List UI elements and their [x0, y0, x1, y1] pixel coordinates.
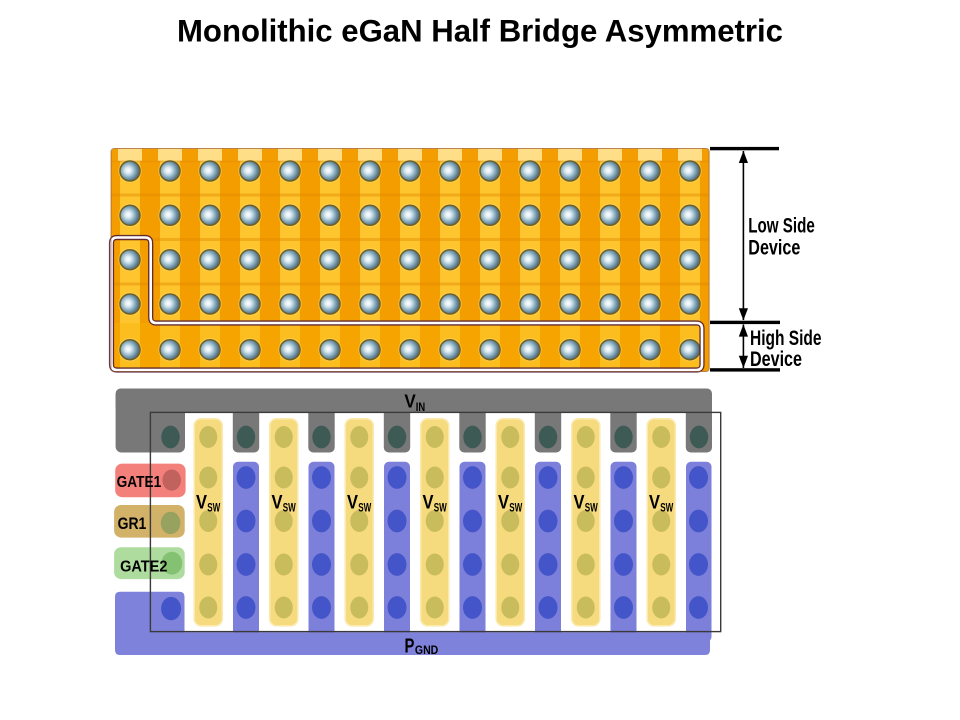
svg-text:SW: SW — [207, 503, 220, 515]
svg-text:GND: GND — [415, 645, 438, 657]
svg-text:SW: SW — [358, 503, 371, 515]
svg-text:Device: Device — [750, 348, 802, 371]
svg-text:V: V — [649, 492, 660, 513]
svg-text:IN: IN — [416, 402, 425, 414]
svg-text:Low Side: Low Side — [748, 215, 815, 238]
svg-text:V: V — [347, 492, 358, 513]
svg-text:GATE2: GATE2 — [120, 559, 167, 576]
svg-text:SW: SW — [660, 503, 673, 515]
svg-text:V: V — [574, 492, 585, 513]
svg-text:SW: SW — [283, 503, 296, 515]
svg-text:V: V — [498, 492, 509, 513]
svg-text:V: V — [272, 492, 283, 513]
svg-text:SW: SW — [509, 503, 522, 515]
svg-text:Device: Device — [748, 237, 800, 260]
svg-text:SW: SW — [434, 503, 447, 515]
svg-text:V: V — [196, 492, 207, 513]
svg-text:GR1: GR1 — [118, 514, 147, 533]
svg-text:P: P — [405, 636, 415, 658]
svg-text:GATE1: GATE1 — [117, 474, 162, 491]
svg-text:V: V — [423, 492, 434, 513]
svg-text:V: V — [404, 391, 416, 412]
svg-text:High Side: High Side — [750, 327, 822, 350]
svg-text:Monolithic eGaN Half Bridge As: Monolithic eGaN Half Bridge Asymmetric — [177, 13, 783, 49]
svg-text:SW: SW — [585, 503, 598, 515]
